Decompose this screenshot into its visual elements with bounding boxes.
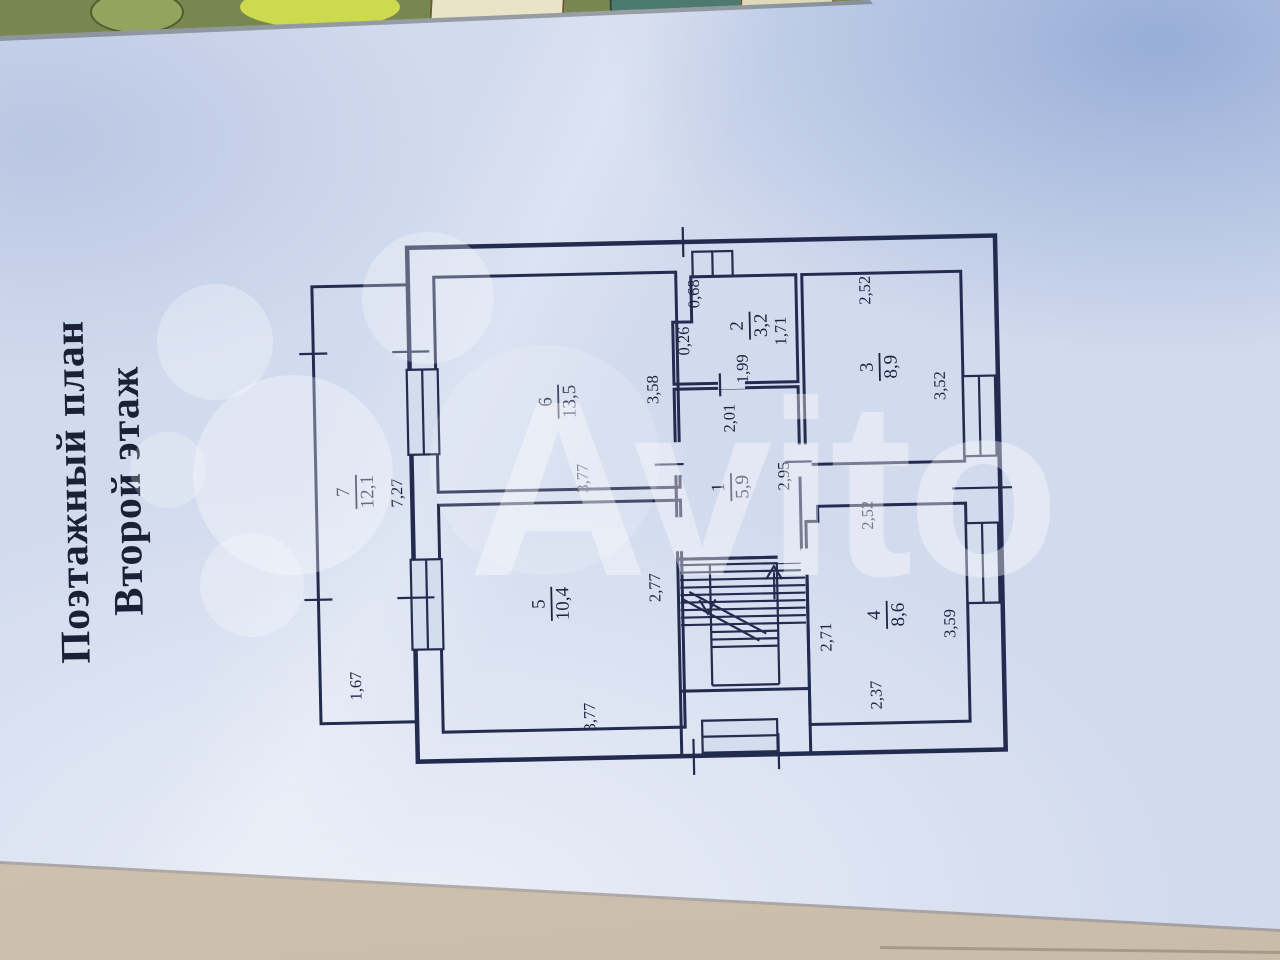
dim-label: 3,59	[940, 609, 960, 638]
svg-text:4: 4	[864, 610, 885, 620]
dim-label: 2,37	[866, 680, 886, 709]
document-content: Поэтажный план Второй этаж	[0, 0, 1280, 960]
svg-text:13,5: 13,5	[559, 385, 581, 419]
window-icon	[966, 523, 1000, 604]
svg-text:2: 2	[727, 321, 748, 331]
svg-text:6: 6	[535, 397, 556, 407]
room-5-label: 5 10,4	[528, 586, 574, 621]
dim-label: 2,52	[855, 276, 875, 305]
svg-text:8,6: 8,6	[888, 603, 909, 627]
svg-text:5: 5	[528, 599, 549, 609]
svg-text:12,1: 12,1	[357, 475, 379, 509]
room-2-label: 2 3,2	[727, 311, 773, 340]
dim-label: 7,27	[387, 478, 407, 507]
interior-walls	[433, 246, 970, 761]
dim-label: 0,26	[674, 326, 694, 355]
title-line-1: Поэтажный план	[43, 276, 106, 707]
room-3-label: 3 8,9	[856, 352, 902, 381]
svg-text:10,4: 10,4	[552, 586, 574, 620]
dim-label: 2,77	[645, 573, 665, 602]
dim-label: 3,77	[573, 464, 593, 493]
svg-text:3: 3	[857, 362, 878, 372]
dim-label: 2,71	[816, 623, 836, 652]
dim-label: 2,52	[857, 501, 877, 530]
dim-label: 3,52	[930, 371, 950, 400]
dim-label: 1,99	[732, 354, 752, 383]
window-icon	[411, 559, 444, 650]
svg-text:1: 1	[708, 482, 729, 492]
dim-label: 2,01	[719, 403, 739, 432]
page-title: Поэтажный план Второй этаж	[43, 275, 182, 708]
svg-text:3,2: 3,2	[751, 313, 772, 337]
dimension-labels: 7,27 1,67 3,58 3,77 2,77 3,77 0,68 0,26 …	[338, 274, 961, 737]
room-1-label: 1 5,9	[708, 473, 754, 502]
window-icon	[702, 719, 778, 753]
dim-label: 1,67	[346, 671, 366, 700]
svg-text:8,9: 8,9	[880, 355, 901, 379]
floor-plan-drawing: 7 12,1 6 13,5 5 10,4 2 3,2	[0, 0, 1280, 960]
svg-text:7: 7	[333, 487, 354, 497]
stair-treads	[680, 563, 807, 648]
vent-shaft	[692, 251, 733, 277]
dim-label: 0,68	[684, 279, 704, 308]
room-6-label: 6 13,5	[535, 384, 581, 419]
dim-label: 1,71	[771, 316, 791, 345]
title-line-2: Второй этаж	[96, 275, 159, 706]
photo-of-floorplan-document: Поэтажный план Второй этаж	[0, 0, 1280, 960]
window-icon	[407, 369, 440, 455]
svg-text:5,9: 5,9	[732, 475, 753, 499]
staircase	[678, 557, 810, 692]
dim-label: 2,95	[774, 461, 794, 490]
room-4-label: 4 8,6	[864, 600, 910, 629]
dim-label: 3,58	[643, 375, 663, 404]
room-7-label: 7 12,1	[333, 474, 379, 509]
window-icon	[963, 376, 997, 457]
dim-label: 3,77	[580, 702, 600, 731]
